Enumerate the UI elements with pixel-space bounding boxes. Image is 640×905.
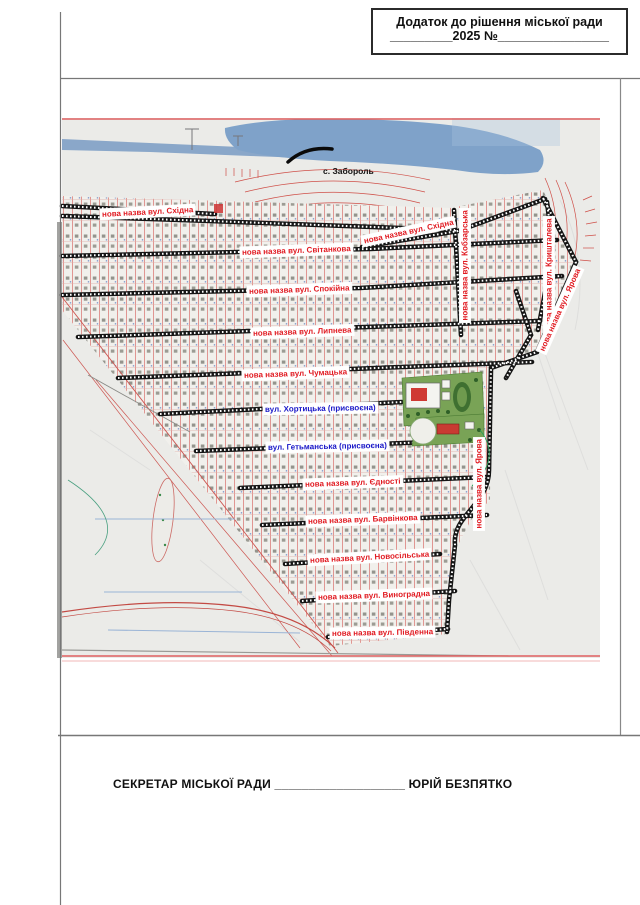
water-wash [452,118,560,146]
secretary-name: ЮРІЙ БЕЗПЯТКО [409,777,513,791]
header-title: Додаток до рішення міської ради [373,15,626,29]
document-page: Додаток до рішення міської ради ________… [0,0,640,905]
signature-blank: ___________________ [271,777,409,791]
street-label-7: вул. Хортицька (присвоєна) [263,401,378,414]
signature-line: СЕКРЕТАР МІСЬКОЇ РАДИ __________________… [0,777,640,797]
street-label-17: нова назва вул. Ярова [474,437,485,530]
park-block [402,372,484,446]
street-label-8: вул. Гетьманська (присвоєна) [266,439,389,452]
settlement-map-scan [0,0,640,905]
scan-left-edge-shadow [57,222,62,658]
decision-header-box: Додаток до рішення міської ради ________… [371,8,628,55]
village-label: с. Забороль [323,166,374,176]
street-label-13: нова назва вул. Південна [330,626,435,639]
secretary-label: СЕКРЕТАР МІСЬКОЇ РАДИ [113,777,271,791]
header-number-line: _________2025 №________________ [373,29,626,43]
street-label-14: нова назва вул. Кобзарська [460,208,471,322]
